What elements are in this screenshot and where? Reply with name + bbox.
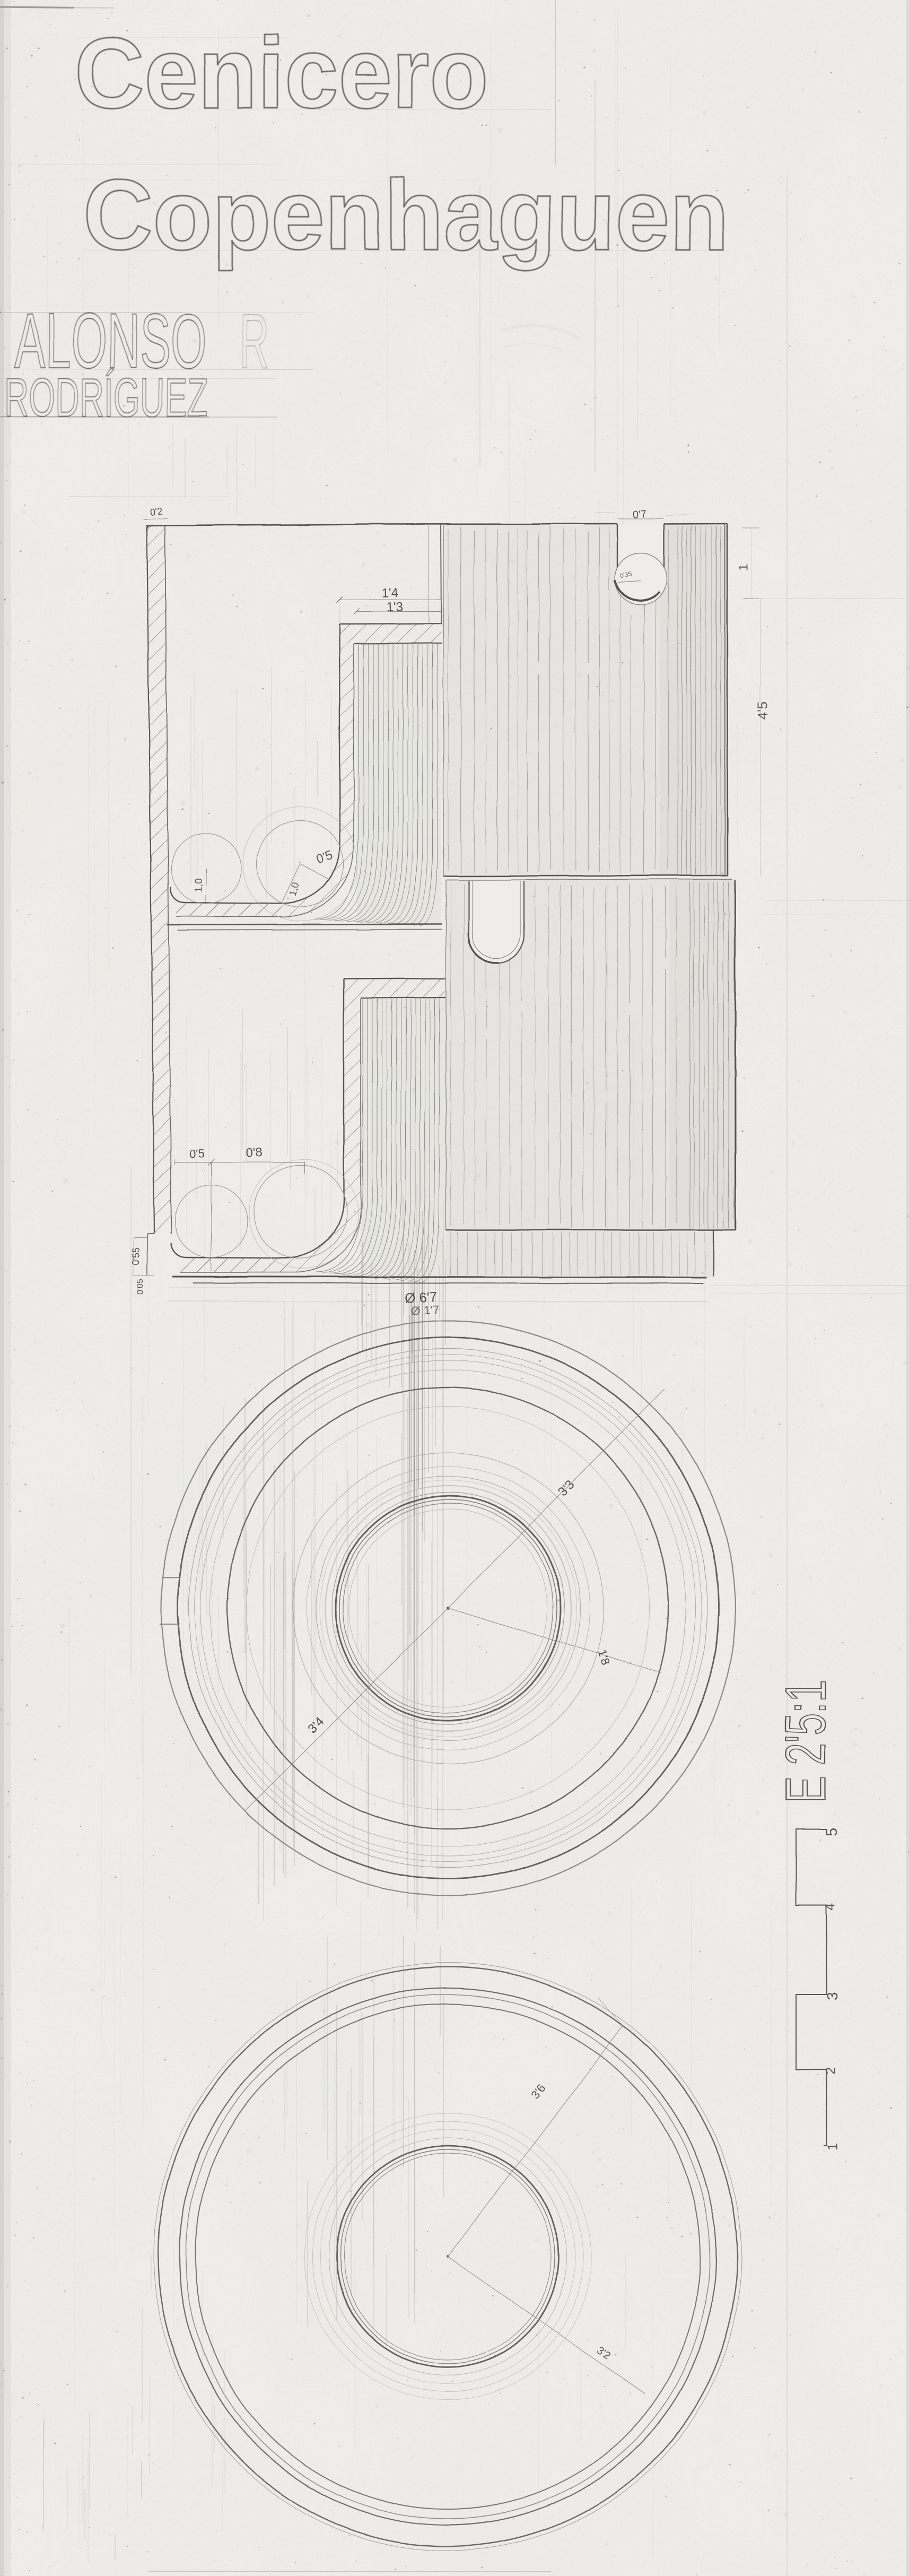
svg-text:1,0: 1,0 — [194, 878, 205, 892]
svg-text:R: R — [240, 298, 269, 384]
svg-text:0'8: 0'8 — [246, 1144, 263, 1160]
svg-text:2: 2 — [822, 2068, 838, 2075]
svg-text:0'5: 0'5 — [189, 1147, 205, 1160]
svg-text:3: 3 — [824, 1992, 840, 2000]
svg-text:1'4: 1'4 — [381, 586, 398, 601]
svg-text:1: 1 — [824, 2143, 840, 2150]
svg-text:RODRÍGUEZ: RODRÍGUEZ — [4, 367, 208, 428]
svg-text:Ø 1'7: Ø 1'7 — [410, 1303, 440, 1318]
svg-text:4'5: 4'5 — [755, 702, 771, 720]
svg-text:0'05: 0'05 — [136, 1279, 145, 1295]
svg-text:0'2: 0'2 — [150, 506, 163, 518]
svg-text:0'55: 0'55 — [131, 1247, 142, 1265]
svg-text:1'3: 1'3 — [386, 600, 403, 614]
svg-text:Cenicero: Cenicero — [74, 17, 489, 129]
svg-text:5: 5 — [823, 1827, 841, 1836]
svg-text:0'7: 0'7 — [633, 508, 648, 521]
svg-text:Copenhaguen: Copenhaguen — [83, 159, 729, 271]
svg-text:E 2'5:1: E 2'5:1 — [773, 1680, 837, 1803]
svg-text:4: 4 — [822, 1903, 838, 1911]
svg-text:1: 1 — [736, 563, 750, 570]
